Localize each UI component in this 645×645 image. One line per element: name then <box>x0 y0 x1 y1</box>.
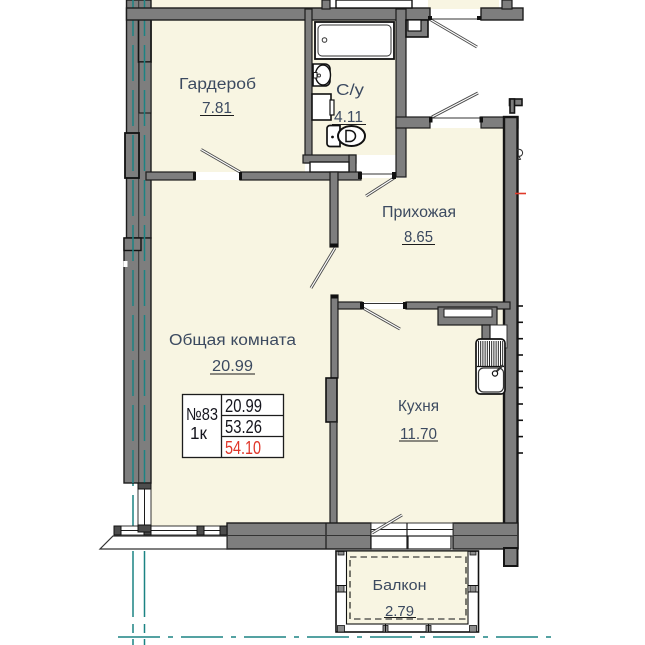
svg-text:Гардероб: Гардероб <box>179 76 256 93</box>
svg-text:20.99: 20.99 <box>212 358 253 375</box>
svg-text:С/у: С/у <box>336 82 364 99</box>
svg-text:11.70: 11.70 <box>400 426 437 443</box>
svg-text:№83: №83 <box>186 404 218 424</box>
svg-text:7.81: 7.81 <box>202 100 232 117</box>
svg-text:Балкон: Балкон <box>373 578 427 594</box>
svg-text:53.26: 53.26 <box>225 417 262 437</box>
svg-text:Кухня: Кухня <box>398 398 439 415</box>
svg-text:54.10: 54.10 <box>225 438 261 458</box>
svg-text:Общая комната: Общая комната <box>169 332 296 349</box>
svg-text:8.65: 8.65 <box>404 229 433 246</box>
svg-text:1к: 1к <box>190 423 207 443</box>
svg-text:4.11: 4.11 <box>334 109 363 126</box>
svg-text:Прихожая: Прихожая <box>382 204 456 221</box>
svg-text:20.99: 20.99 <box>225 396 262 416</box>
